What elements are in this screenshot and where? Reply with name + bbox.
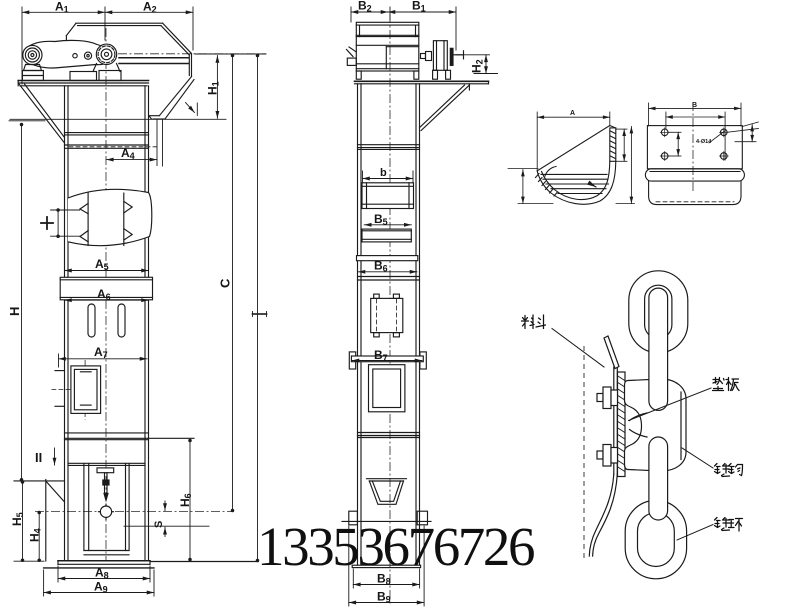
svg-text:b: b	[380, 167, 387, 179]
svg-text:H: H	[7, 307, 22, 316]
svg-text:4-Ø14: 4-Ø14	[696, 139, 712, 145]
svg-text:13353676726: 13353676726	[257, 516, 534, 577]
svg-text:A: A	[570, 110, 575, 117]
svg-text:S: S	[153, 521, 165, 528]
svg-text:II: II	[35, 450, 42, 465]
svg-text:B: B	[692, 102, 697, 109]
svg-text:C: C	[218, 278, 233, 288]
